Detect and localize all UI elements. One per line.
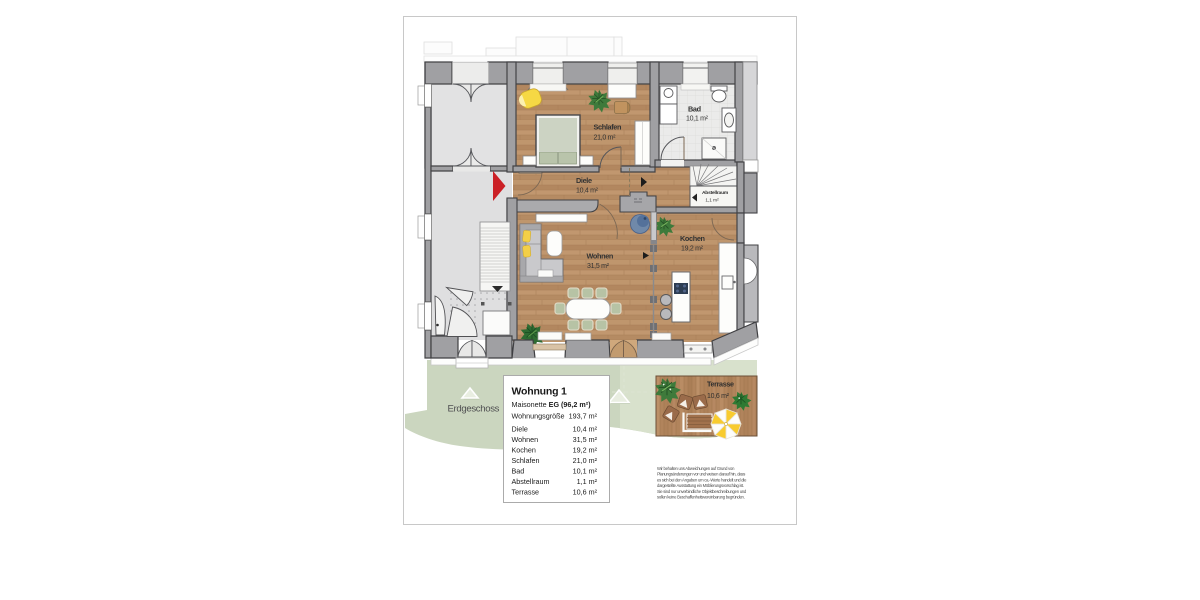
- svg-text:1,1 m²: 1,1 m²: [705, 198, 719, 203]
- svg-text:10,6 m²: 10,6 m²: [573, 488, 598, 497]
- svg-text:Terrasse: Terrasse: [512, 488, 540, 497]
- svg-text:Abstellraum: Abstellraum: [512, 477, 550, 486]
- svg-text:21,0 m²: 21,0 m²: [594, 135, 617, 142]
- svg-text:Planungsänderungen vor und wei: Planungsänderungen vor und weisen darauf…: [657, 472, 745, 477]
- svg-text:Diele: Diele: [512, 425, 528, 434]
- svg-text:Wohnen: Wohnen: [512, 435, 539, 444]
- svg-text:Wohnungsgröße: Wohnungsgröße: [512, 412, 565, 421]
- svg-text:Maisonette EG (96,2 m²): Maisonette EG (96,2 m²): [512, 400, 592, 409]
- svg-text:21,0 m²: 21,0 m²: [573, 456, 598, 465]
- svg-text:Kochen: Kochen: [680, 234, 705, 243]
- svg-text:sollen keine Beschaffenheitsve: sollen keine Beschaffenheitsvereinbarung…: [657, 495, 745, 500]
- svg-text:Schlafen: Schlafen: [594, 123, 622, 132]
- svg-text:31,5 m²: 31,5 m²: [587, 263, 610, 270]
- svg-text:Bad: Bad: [512, 467, 525, 476]
- svg-text:10,4 m²: 10,4 m²: [576, 188, 599, 195]
- svg-text:19,2 m²: 19,2 m²: [573, 446, 598, 455]
- svg-text:31,5 m²: 31,5 m²: [573, 435, 598, 444]
- svg-text:Abstellraum: Abstellraum: [702, 190, 729, 196]
- svg-text:10,1 m²: 10,1 m²: [686, 116, 709, 123]
- svg-text:es sich bei den Angaben um ca.: es sich bei den Angaben um ca.-Werte han…: [657, 477, 747, 482]
- svg-text:Kochen: Kochen: [512, 446, 536, 455]
- svg-text:19,2 m²: 19,2 m²: [681, 246, 704, 253]
- svg-text:Bad: Bad: [688, 105, 701, 114]
- svg-text:Erdgeschoss: Erdgeschoss: [448, 404, 500, 415]
- svg-text:193,7 m²: 193,7 m²: [569, 412, 598, 421]
- svg-text:dargestellte Ausstattung ein M: dargestellte Ausstattung ein Möblierungs…: [657, 483, 744, 488]
- svg-text:10,4 m²: 10,4 m²: [573, 425, 598, 434]
- svg-text:1,1 m²: 1,1 m²: [577, 477, 598, 486]
- svg-text:10,6 m²: 10,6 m²: [707, 393, 730, 400]
- svg-text:Wohnen: Wohnen: [587, 252, 614, 261]
- svg-text:Wohnung 1: Wohnung 1: [512, 386, 568, 398]
- svg-text:Sie sind nur unverbindliche Ob: Sie sind nur unverbindliche Objektbeschr…: [657, 489, 747, 494]
- svg-text:Schlafen: Schlafen: [512, 456, 540, 465]
- svg-text:Terrasse: Terrasse: [707, 380, 734, 389]
- svg-text:10,1 m²: 10,1 m²: [573, 467, 598, 476]
- svg-text:Wir behalten uns Abweichungen: Wir behalten uns Abweichungen auf Grund …: [657, 466, 735, 471]
- svg-text:Diele: Diele: [576, 176, 592, 185]
